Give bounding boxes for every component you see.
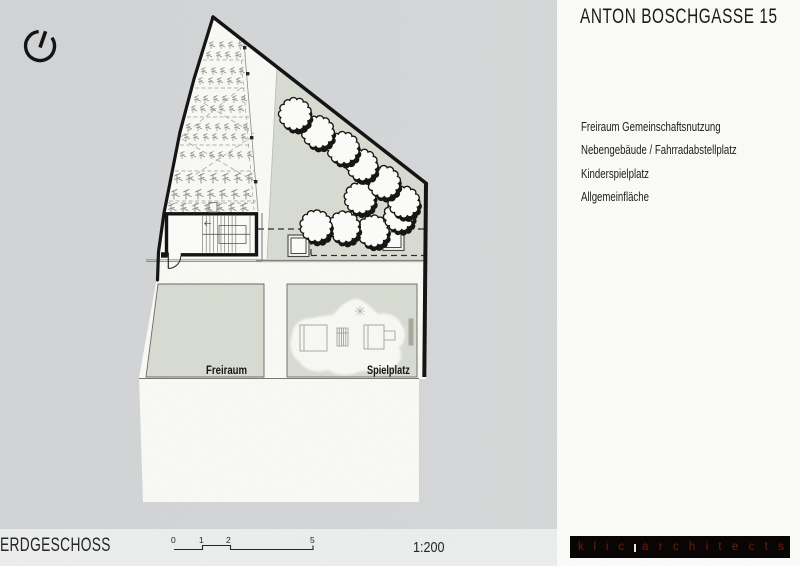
svg-text:2: 2 (226, 535, 231, 545)
svg-text:1: 1 (199, 535, 204, 545)
svg-text:0: 0 (171, 535, 176, 545)
svg-text:5: 5 (310, 535, 315, 545)
